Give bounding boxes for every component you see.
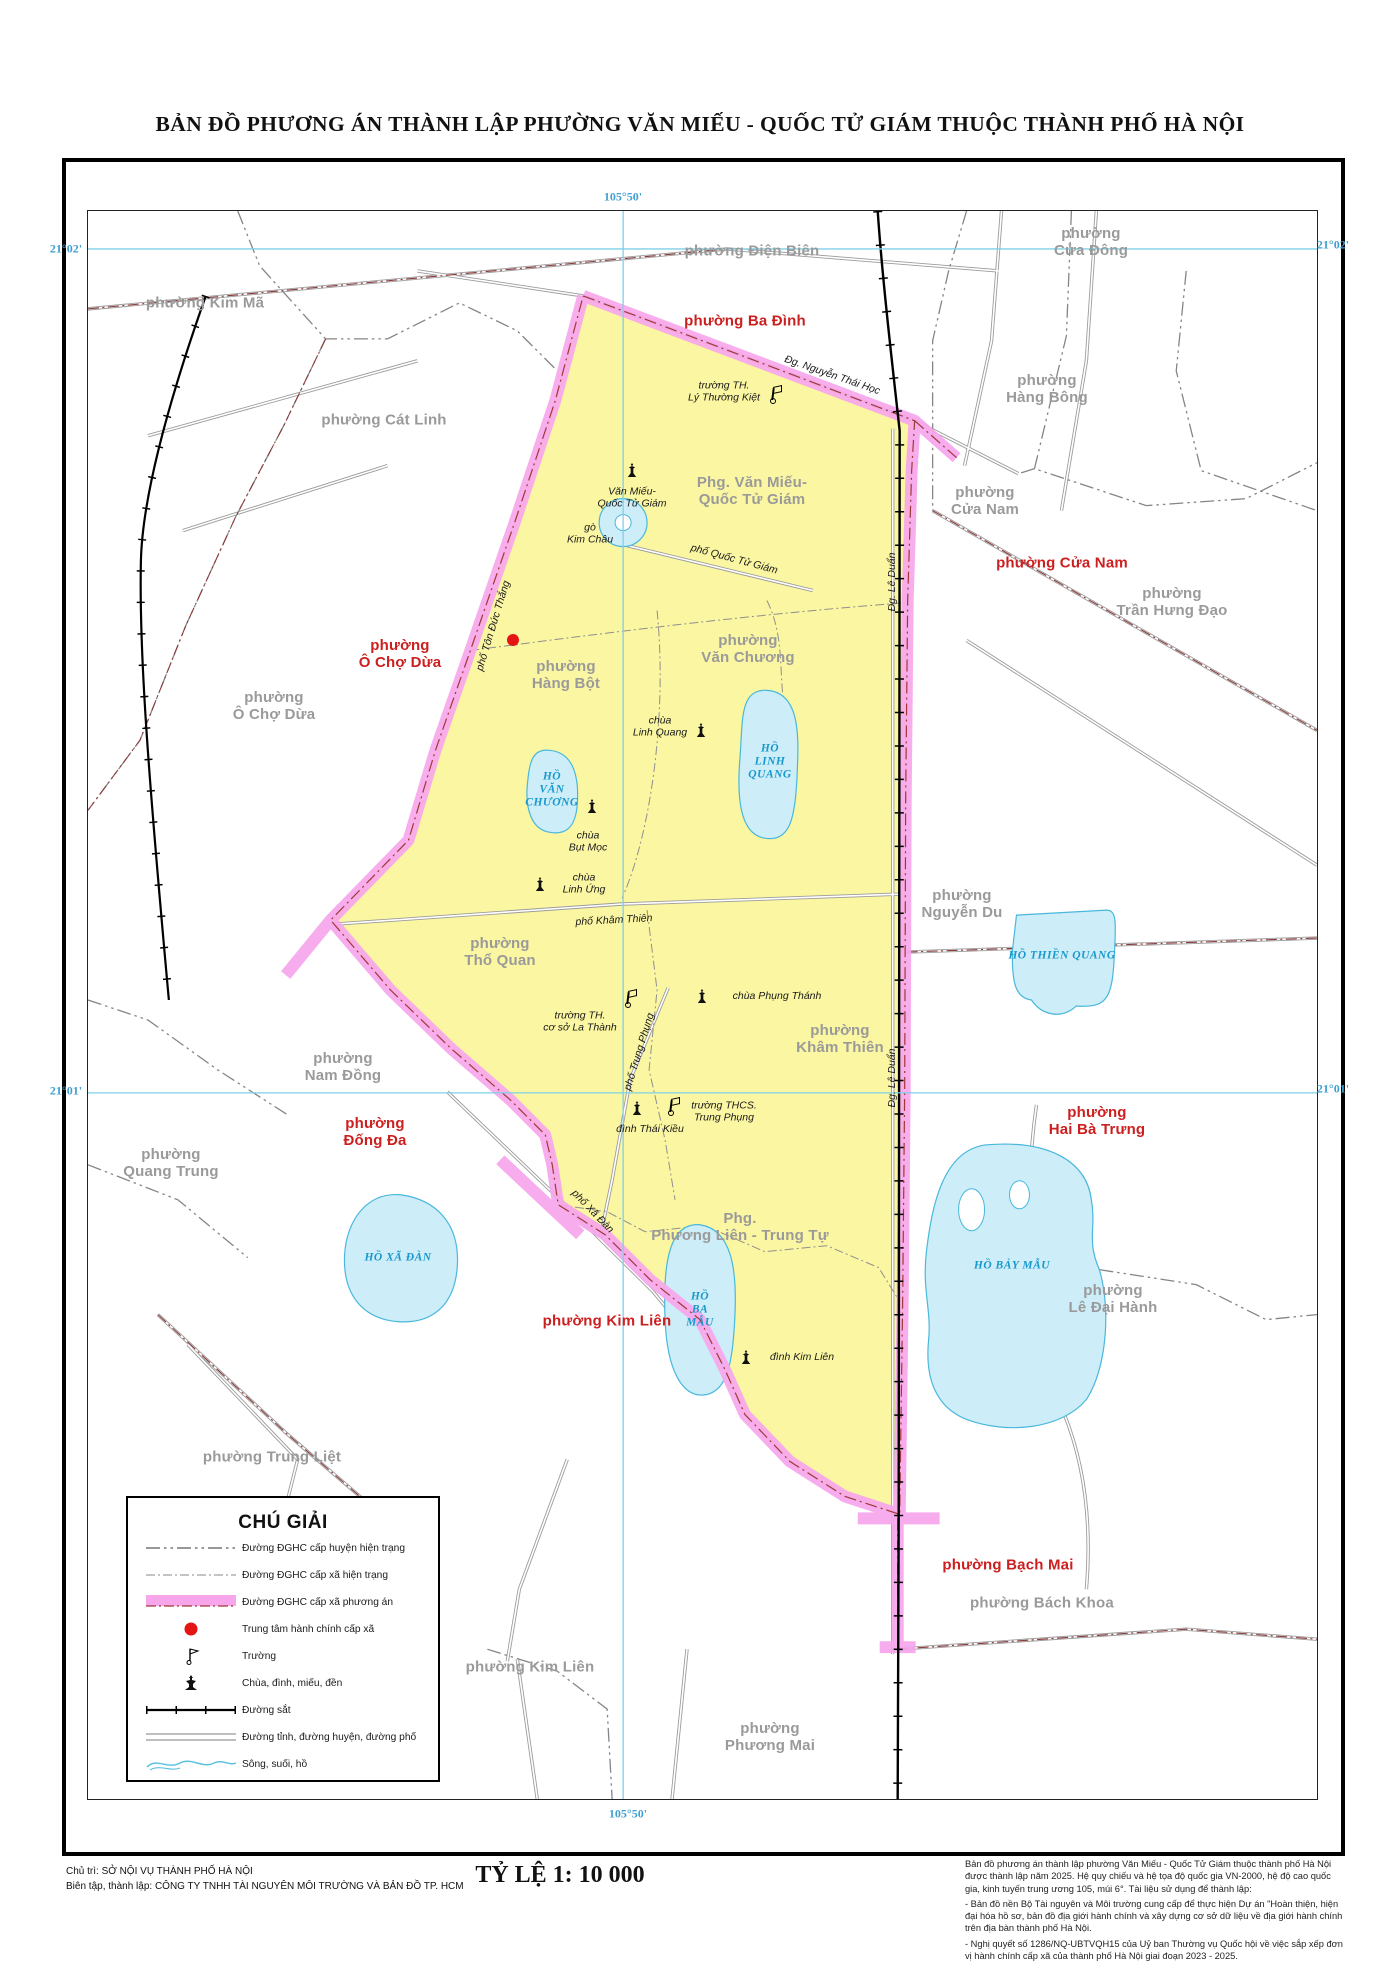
legend-item-label: Đường ĐGHC cấp huyện hiện trạng <box>242 1543 405 1554</box>
legend-item-label: Trường <box>242 1651 276 1662</box>
lake-xa-dan <box>344 1195 457 1322</box>
legend-item-line-district: Đường ĐGHC cấp huyện hiện trạng <box>142 1535 430 1561</box>
legend-box: CHÚ GIẢI Đường ĐGHC cấp huyện hiện trạng… <box>126 1496 440 1782</box>
legend-rows: Đường ĐGHC cấp huyện hiện trạngĐường ĐGH… <box>128 1535 438 1777</box>
scale-label: TỶ LỆ 1: 10 000 <box>420 1862 700 1889</box>
legend-item-label: Chùa, đình, miếu, đền <box>242 1678 342 1689</box>
note-paragraph: - Nghị quyết số 1286/NQ-UBTVQH15 của Uỷ … <box>965 1938 1347 1963</box>
lake-linh-quang <box>739 690 798 838</box>
road-icon <box>142 1727 242 1747</box>
map-title: BẢN ĐỒ PHƯƠNG ÁN THÀNH LẬP PHƯỜNG VĂN MI… <box>0 112 1400 137</box>
note-paragraph: Bản đồ phương án thành lập phường Văn Mi… <box>965 1858 1347 1895</box>
lake-van-chuong <box>527 750 578 833</box>
legend-item-dot-center: Trung tâm hành chính cấp xã <box>142 1616 430 1642</box>
note-paragraph: - Bản đồ nền Bộ Tài nguyên và Môi trường… <box>965 1898 1347 1935</box>
lake-thien-quang <box>1012 910 1115 1014</box>
river-icon <box>142 1754 242 1774</box>
map-notes: Bản đồ phương án thành lập phường Văn Mi… <box>965 1858 1347 1965</box>
flag-school-icon <box>142 1646 242 1666</box>
legend-item-river: Sông, suối, hồ <box>142 1751 430 1777</box>
legend-item-band-plan: Đường ĐGHC cấp xã phương án <box>142 1589 430 1615</box>
legend-item-label: Sông, suối, hồ <box>242 1759 307 1770</box>
legend-title: CHÚ GIẢI <box>128 1512 438 1534</box>
legend-item-label: Trung tâm hành chính cấp xã <box>242 1624 374 1635</box>
line-commune-icon <box>142 1565 242 1585</box>
railway-icon <box>142 1700 242 1720</box>
legend-item-label: Đường tỉnh, đường huyện, đường phố <box>242 1732 416 1743</box>
legend-item-railway: Đường sắt <box>142 1697 430 1723</box>
legend-item-flag-school: Trường <box>142 1643 430 1669</box>
legend-item-label: Đường ĐGHC cấp xã phương án <box>242 1597 393 1608</box>
legend-item-road: Đường tỉnh, đường huyện, đường phố <box>142 1724 430 1750</box>
dot-center-icon <box>142 1619 242 1639</box>
legend-item-label: Đường sắt <box>242 1705 291 1716</box>
pagoda-icon <box>142 1673 242 1693</box>
legend-item-label: Đường ĐGHC cấp xã hiện trạng <box>242 1570 388 1581</box>
band-plan-icon <box>142 1592 242 1612</box>
line-district-icon <box>142 1538 242 1558</box>
legend-item-pagoda: Chùa, đình, miếu, đền <box>142 1670 430 1696</box>
legend-item-line-commune: Đường ĐGHC cấp xã hiện trạng <box>142 1562 430 1588</box>
